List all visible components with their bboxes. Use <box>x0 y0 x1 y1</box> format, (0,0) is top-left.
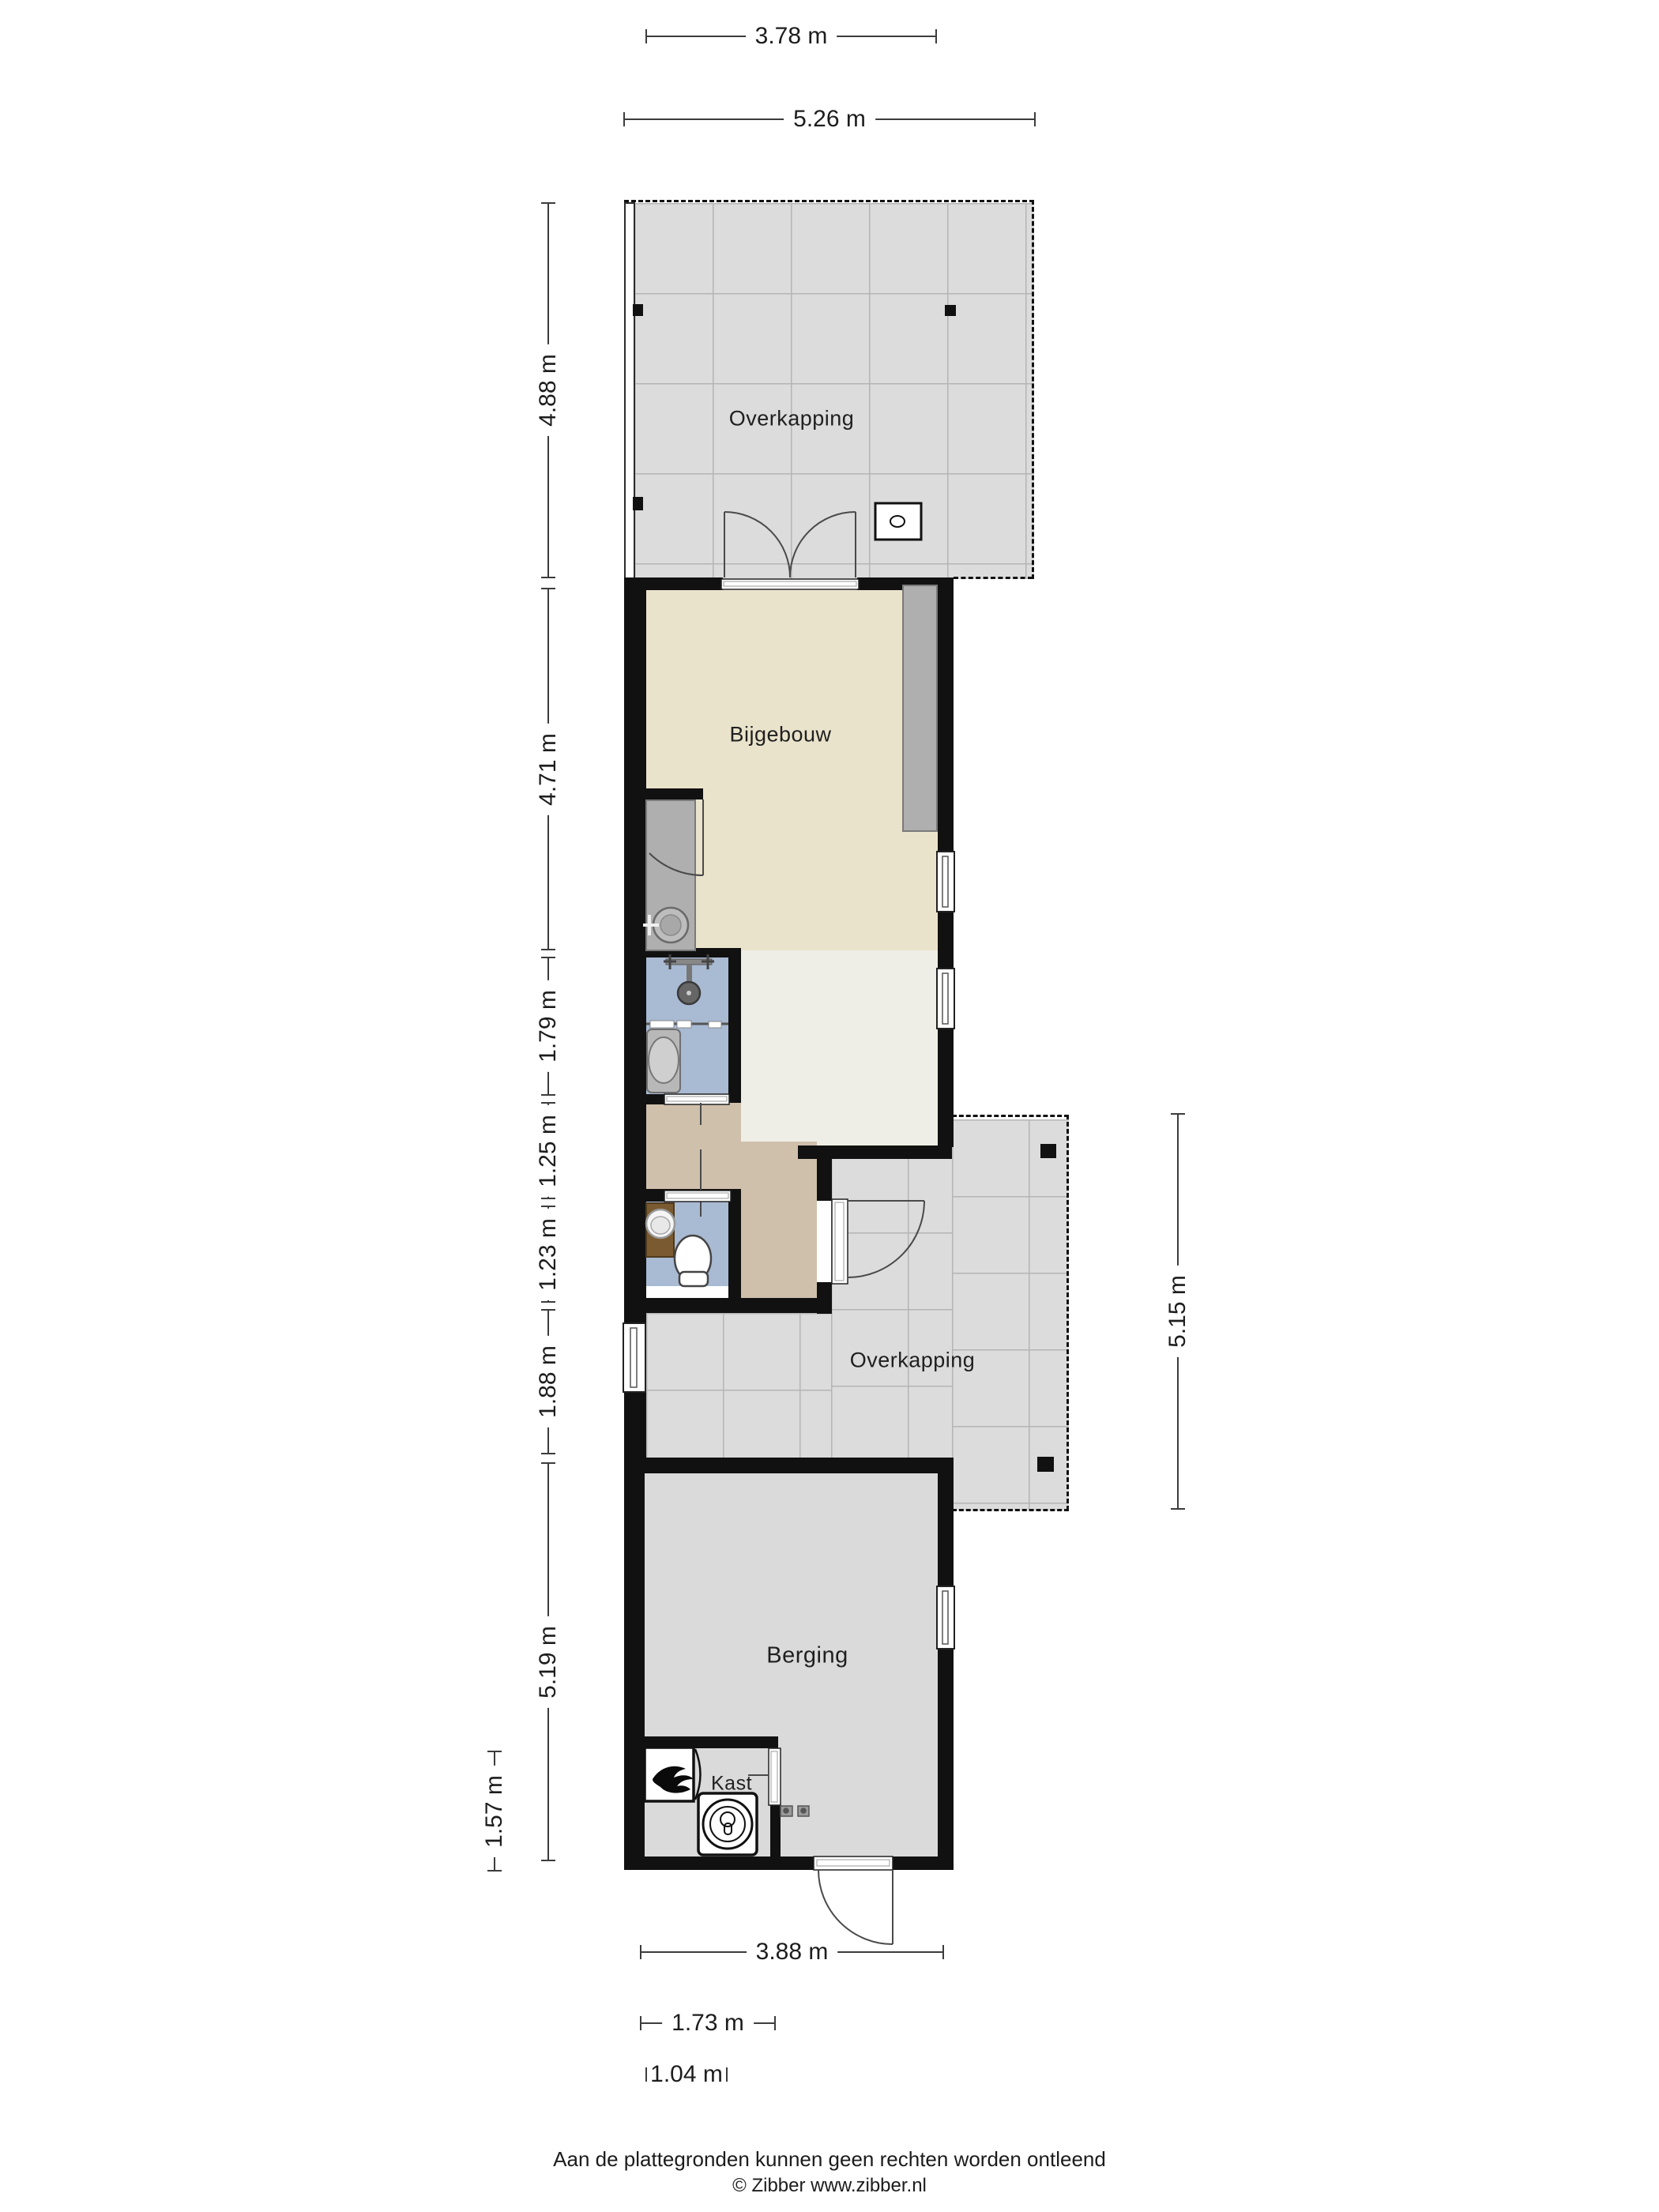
dimension-label: 1.73 m <box>662 2010 754 2037</box>
dimension-4-88: 4.88 m <box>547 203 549 577</box>
plan-graphic <box>650 1021 674 1028</box>
dimension-tick <box>541 1453 555 1454</box>
dimension-label: 1.04 m <box>641 2061 732 2088</box>
plan-graphic <box>664 1191 731 1202</box>
plan-graphic <box>937 1586 954 1649</box>
floorplan: Overkapping Bijgebouw Overkapping Bergin… <box>0 0 1659 2212</box>
window <box>623 1323 645 1392</box>
dimension-tick <box>487 1751 502 1752</box>
plan-graphic <box>623 1323 645 1392</box>
plan-graphic <box>875 503 921 540</box>
shower-screen <box>646 1021 728 1028</box>
counter-right <box>903 585 937 831</box>
copyright-text: © Zibber www.zibber.nl <box>0 2175 1659 2197</box>
dimension-3-78: 3.78 m <box>646 36 936 37</box>
dimension-tick <box>935 29 937 43</box>
plan-graphic <box>724 512 790 577</box>
room-label-overkapping-top: Overkapping <box>729 407 855 431</box>
dimension-5-19: 5.19 m <box>547 1463 549 1860</box>
canopy-posts <box>633 304 1056 1472</box>
room-label-berging: Berging <box>766 1643 848 1669</box>
toilet-vanity <box>646 1203 675 1257</box>
plan-graphic <box>937 969 954 1029</box>
plan-graphic <box>677 1021 691 1028</box>
dimension-tick <box>1171 1113 1185 1115</box>
plan-graphic <box>1037 1457 1054 1472</box>
shower <box>664 954 714 1004</box>
dimension-label: 1.57 m <box>481 1766 508 1857</box>
door-toilet-room <box>664 1191 731 1202</box>
dimension-tick <box>541 1462 555 1464</box>
french-door <box>721 512 859 589</box>
plan-graphic <box>818 1870 893 1944</box>
dimension-tick <box>1171 1508 1185 1510</box>
plan-graphic <box>709 1021 721 1028</box>
dimension-tick <box>726 2067 728 2082</box>
washing-machine <box>698 1793 757 1855</box>
dimension-3-88: 3.88 m <box>641 1951 943 1953</box>
plan-graphic <box>687 991 691 995</box>
dimension-1-57: 1.57 m <box>494 1751 495 1871</box>
dimension-label: 5.19 m <box>535 1616 562 1708</box>
plan-graphic <box>721 579 859 589</box>
disclaimer-text: Aan de plattegronden kunnen geen rechten… <box>0 2147 1659 2172</box>
dimension-label: 1.25 m <box>535 1105 562 1197</box>
plan-graphic <box>633 497 643 510</box>
dimension-tick <box>942 1945 944 1959</box>
window <box>937 1586 954 1649</box>
dimension-label: 1.88 m <box>535 1336 562 1428</box>
dimension-label: 4.88 m <box>535 344 562 436</box>
plan-graphic <box>784 1808 788 1813</box>
plan-graphic <box>651 1217 670 1234</box>
dimension-tick <box>541 1198 555 1199</box>
dimension-label: 4.71 m <box>535 724 562 815</box>
dimension-1-23: 1.23 m <box>547 1206 549 1302</box>
door-berging <box>814 1856 893 1944</box>
dimension-tick <box>541 957 555 958</box>
dimension-label: 5.15 m <box>1164 1266 1191 1357</box>
dimension-tick <box>640 2016 641 2030</box>
dimension-1-88: 1.88 m <box>547 1310 549 1454</box>
door-to-canopy <box>832 1199 924 1284</box>
dimension-tick <box>541 202 555 204</box>
plan-graphic <box>660 915 681 935</box>
dimension-tick <box>645 2067 647 2082</box>
plan-graphic <box>649 1037 679 1083</box>
dimension-5-15: 5.15 m <box>1177 1114 1179 1509</box>
dimension-1-73: 1.73 m <box>641 2022 775 2024</box>
fixtures-layer <box>0 0 1659 2212</box>
dimension-tick <box>645 29 647 43</box>
plan-graphic <box>664 1094 729 1104</box>
dimension-tick <box>541 577 555 578</box>
dimension-tick <box>541 1860 555 1861</box>
plan-graphic <box>814 1856 893 1870</box>
dimension-label: 5.26 m <box>784 106 875 133</box>
boiler <box>645 1747 701 1801</box>
plan-graphic <box>1040 1144 1056 1158</box>
plan-graphic <box>790 512 856 577</box>
plan-graphic <box>801 1808 806 1813</box>
dimension-label: 1.79 m <box>535 980 562 1072</box>
dimension-tick <box>541 1309 555 1311</box>
dimension-1-04: 1.04 m <box>646 2074 727 2075</box>
plan-graphic <box>679 1272 708 1286</box>
toilet-icon <box>675 1236 711 1286</box>
dimension-1-79: 1.79 m <box>547 957 549 1095</box>
room-label-bijgebouw: Bijgebouw <box>729 723 831 747</box>
room-label-kast: Kast <box>711 1773 752 1796</box>
plan-graphic <box>633 304 643 316</box>
dimension-tick <box>541 949 555 950</box>
disclaimer: Aan de plattegronden kunnen geen rechten… <box>0 2147 1659 2197</box>
dimension-1-25: 1.25 m <box>547 1103 549 1198</box>
dimension-tick <box>623 112 625 126</box>
window <box>937 852 954 912</box>
plan-graphic <box>832 1199 848 1284</box>
dimension-tick <box>541 1206 555 1207</box>
kitchenette-counter <box>643 800 695 950</box>
plan-graphic <box>848 1201 924 1277</box>
ceiling-light-box <box>875 503 921 540</box>
plan-graphic <box>687 965 692 984</box>
washer-taps <box>781 1806 809 1816</box>
dimension-tick <box>541 1102 555 1104</box>
dimension-tick <box>640 1945 641 1959</box>
dimension-5-26: 5.26 m <box>624 118 1035 120</box>
dimension-tick <box>774 2016 776 2030</box>
dimension-tick <box>1034 112 1036 126</box>
dimension-label: 1.23 m <box>535 1209 562 1300</box>
washbasin <box>647 1029 680 1093</box>
plan-graphic <box>769 1748 781 1805</box>
dimension-tick <box>541 1301 555 1303</box>
room-label-overkapping-middle: Overkapping <box>850 1349 976 1373</box>
dimension-tick <box>541 1094 555 1096</box>
dimension-label: 3.88 m <box>747 1939 838 1966</box>
plan-graphic <box>945 305 956 316</box>
plan-graphic <box>937 852 954 912</box>
dimension-tick <box>487 1870 502 1872</box>
dimension-label: 3.78 m <box>746 23 837 50</box>
dimension-tick <box>541 588 555 589</box>
plan-graphic <box>695 1749 701 1800</box>
window <box>937 969 954 1029</box>
dimension-4-71: 4.71 m <box>547 589 549 950</box>
